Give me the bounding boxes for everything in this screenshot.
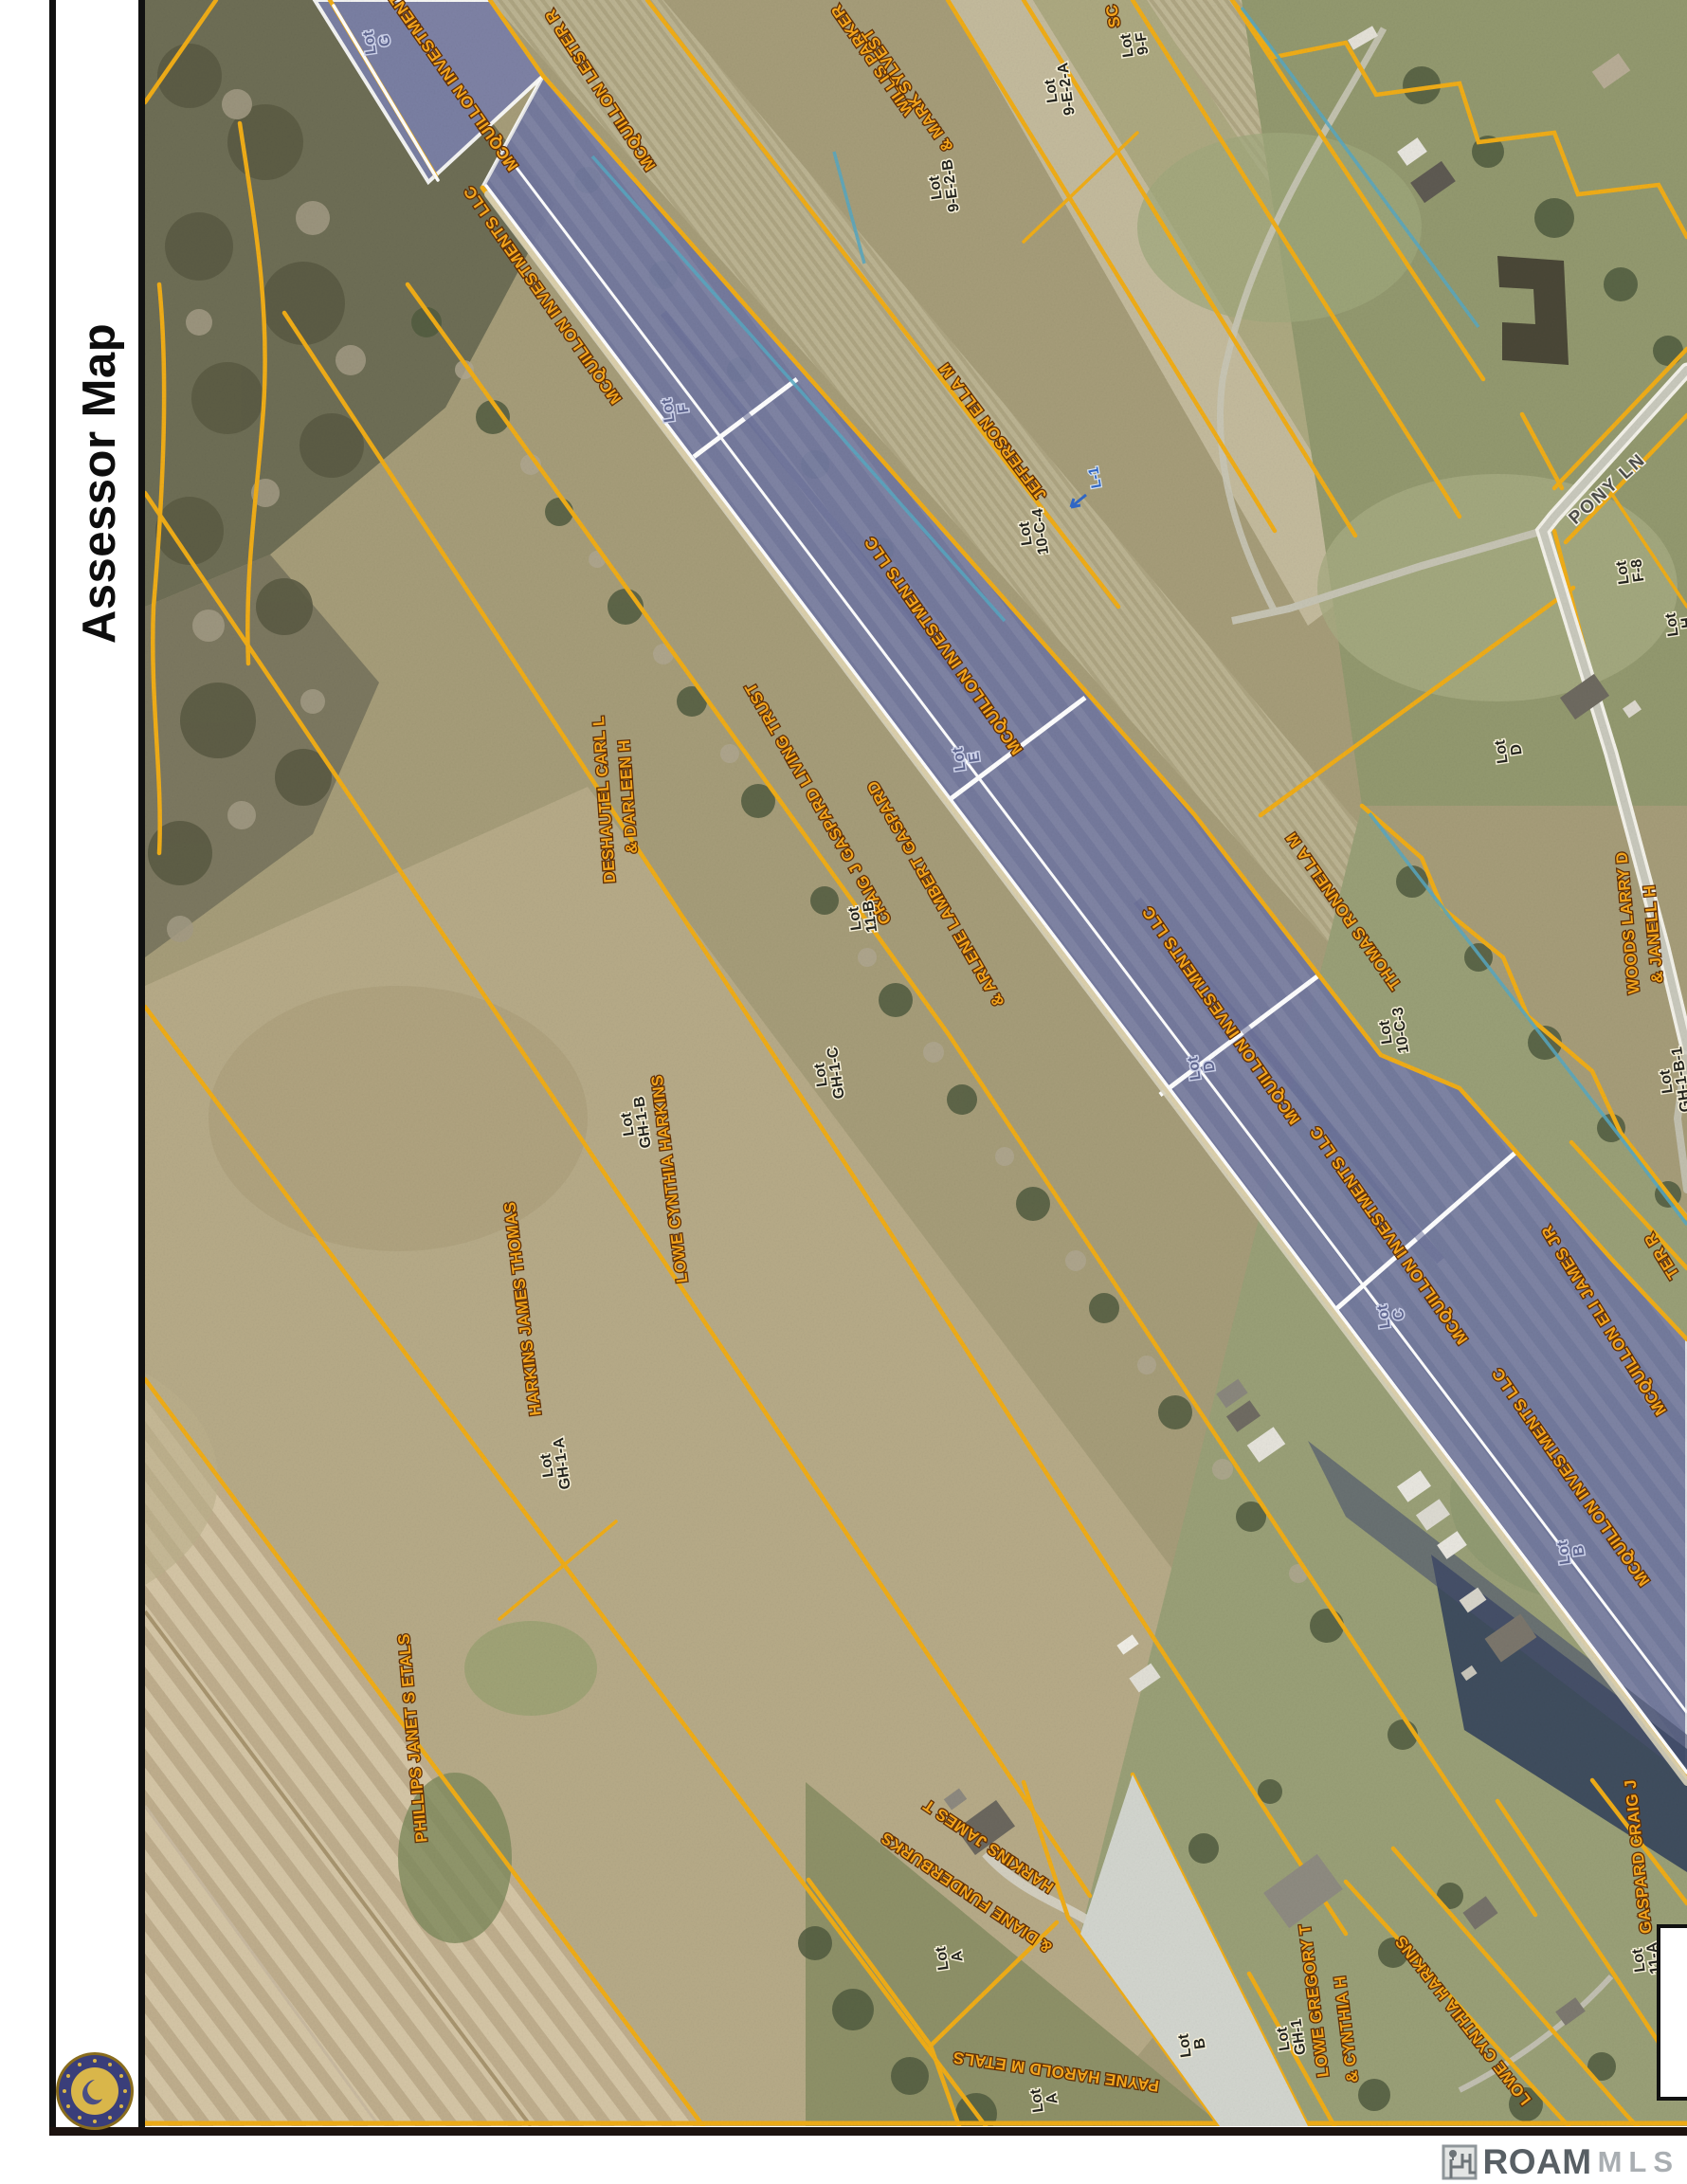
lot-label-f-8-line2: F-8 (1628, 558, 1647, 583)
louisiana-seal (56, 2052, 134, 2130)
lot-label-g-line2: G (376, 33, 394, 47)
roam-logo-text: ROAM (1483, 2142, 1592, 2182)
assessor-map-page: MCQUILLON INVESTMENTS LLCMCQUILLON LESTE… (0, 0, 1687, 2184)
lot-label-d-east-line2: D (1508, 743, 1525, 756)
aerial-imagery: MCQUILLON INVESTMENTS LLCMCQUILLON LESTE… (0, 0, 1687, 2180)
roam-logo-icon (1442, 2144, 1478, 2180)
lot-label-b-south-line2: B (1191, 2037, 1208, 2050)
page-title: Assessor Map (57, 284, 142, 682)
lot-label-b-band-line2: B (1570, 1544, 1587, 1557)
outer-frame-left (49, 0, 56, 2135)
roam-mls-logo: ROAM MLS (1442, 2142, 1679, 2182)
map-canvas: MCQUILLON INVESTMENTS LLCMCQUILLON LESTE… (0, 0, 1687, 2184)
mls-logo-text: MLS (1598, 2145, 1679, 2179)
map-inset-box (1659, 1926, 1687, 2099)
lot-label-9-f-line2: 9-F (1133, 31, 1152, 56)
frame-bottom (49, 2127, 1687, 2136)
lot-label-d-band-line2: D (1201, 1060, 1218, 1073)
